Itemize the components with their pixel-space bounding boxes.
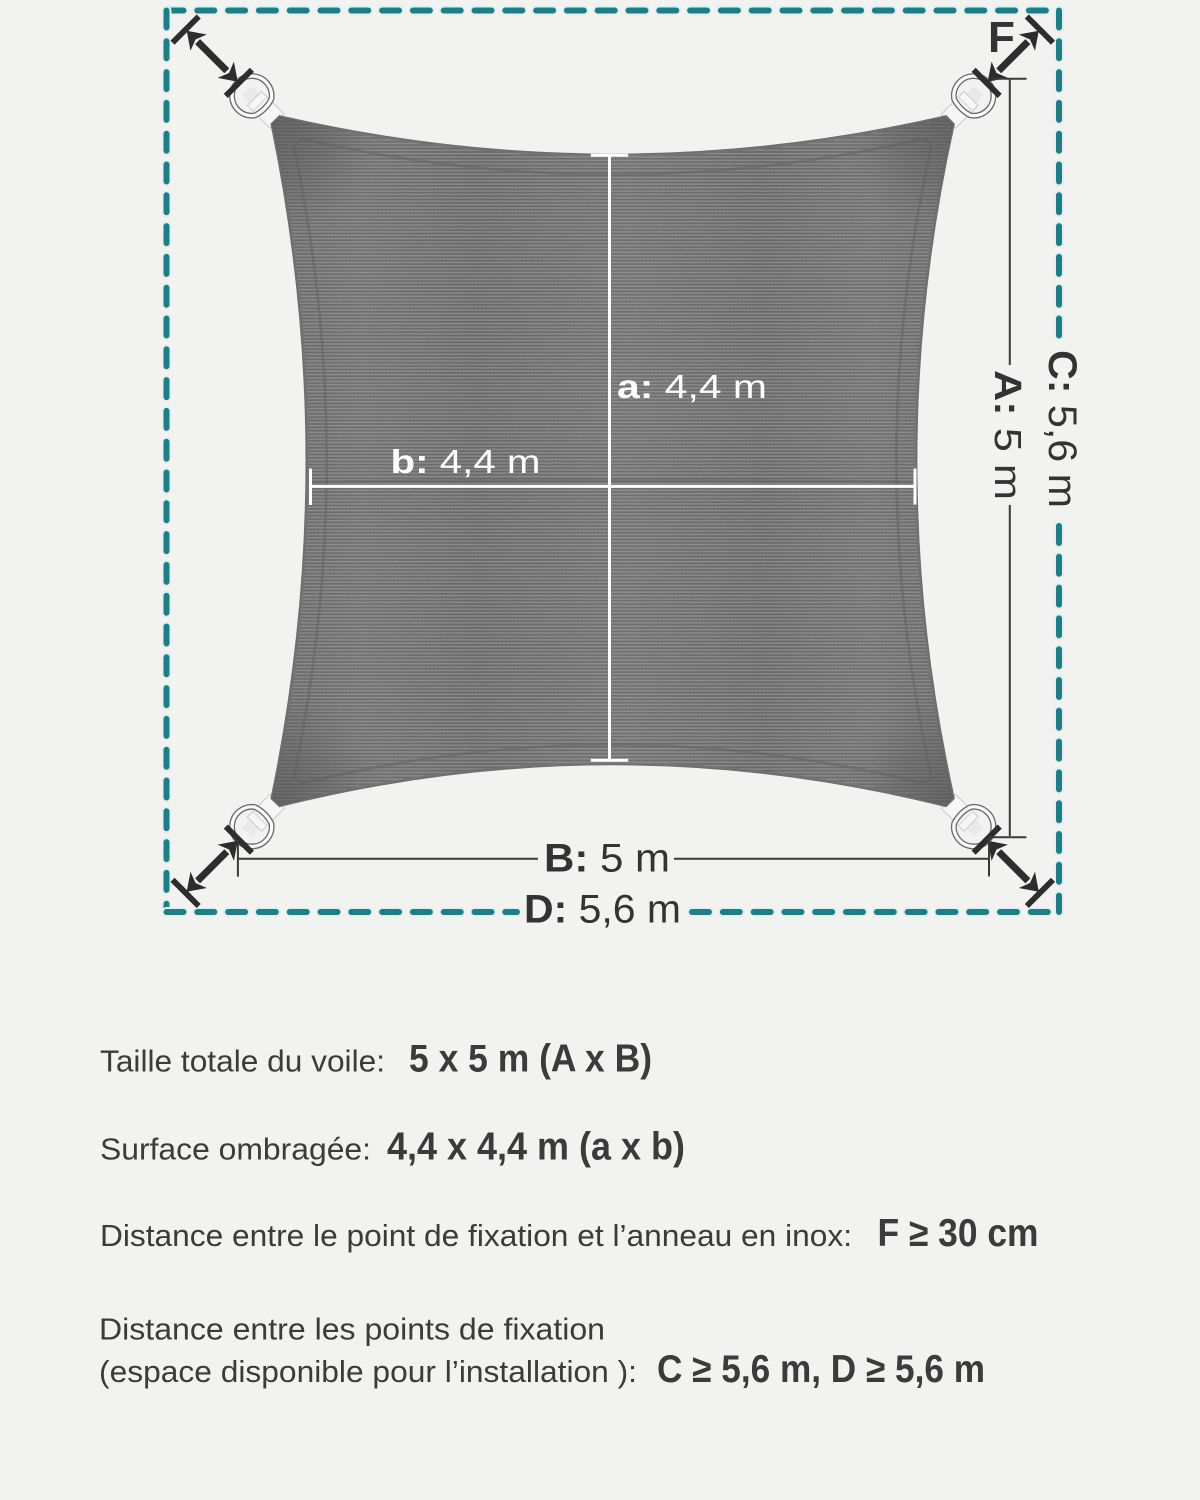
- svg-text:b: 4,4 m: b: 4,4 m: [391, 443, 541, 480]
- svg-text:F: F: [988, 13, 1015, 62]
- svg-text:B: 5 m: B: 5 m: [544, 837, 670, 881]
- svg-text:F ≥ 30 cm: F ≥ 30 cm: [878, 1212, 1039, 1255]
- svg-text:(espace disponible pour l’inst: (espace disponible pour l’installation )…: [99, 1354, 637, 1389]
- svg-text:4,4 x 4,4 m (a x b): 4,4 x 4,4 m (a x b): [387, 1126, 685, 1169]
- svg-text:C: 5,6 m: C: 5,6 m: [1040, 350, 1084, 508]
- svg-text:D: 5,6 m: D: 5,6 m: [524, 888, 681, 932]
- svg-text:Distance entre les points de f: Distance entre les points de fixation: [99, 1311, 605, 1346]
- svg-text:C ≥ 5,6 m, D ≥ 5,6 m: C ≥ 5,6 m, D ≥ 5,6 m: [657, 1348, 985, 1391]
- svg-text:Surface ombragée:: Surface ombragée:: [100, 1132, 371, 1167]
- svg-text:5 x 5 m (A x B): 5 x 5 m (A x B): [409, 1038, 652, 1081]
- svg-text:a: 4,4 m: a: 4,4 m: [617, 368, 767, 405]
- svg-text:A: 5 m: A: 5 m: [986, 370, 1028, 500]
- svg-text:Taille totale du voile:: Taille totale du voile:: [100, 1044, 385, 1079]
- svg-text:Distance entre le point de fix: Distance entre le point de fixation et l…: [100, 1218, 852, 1253]
